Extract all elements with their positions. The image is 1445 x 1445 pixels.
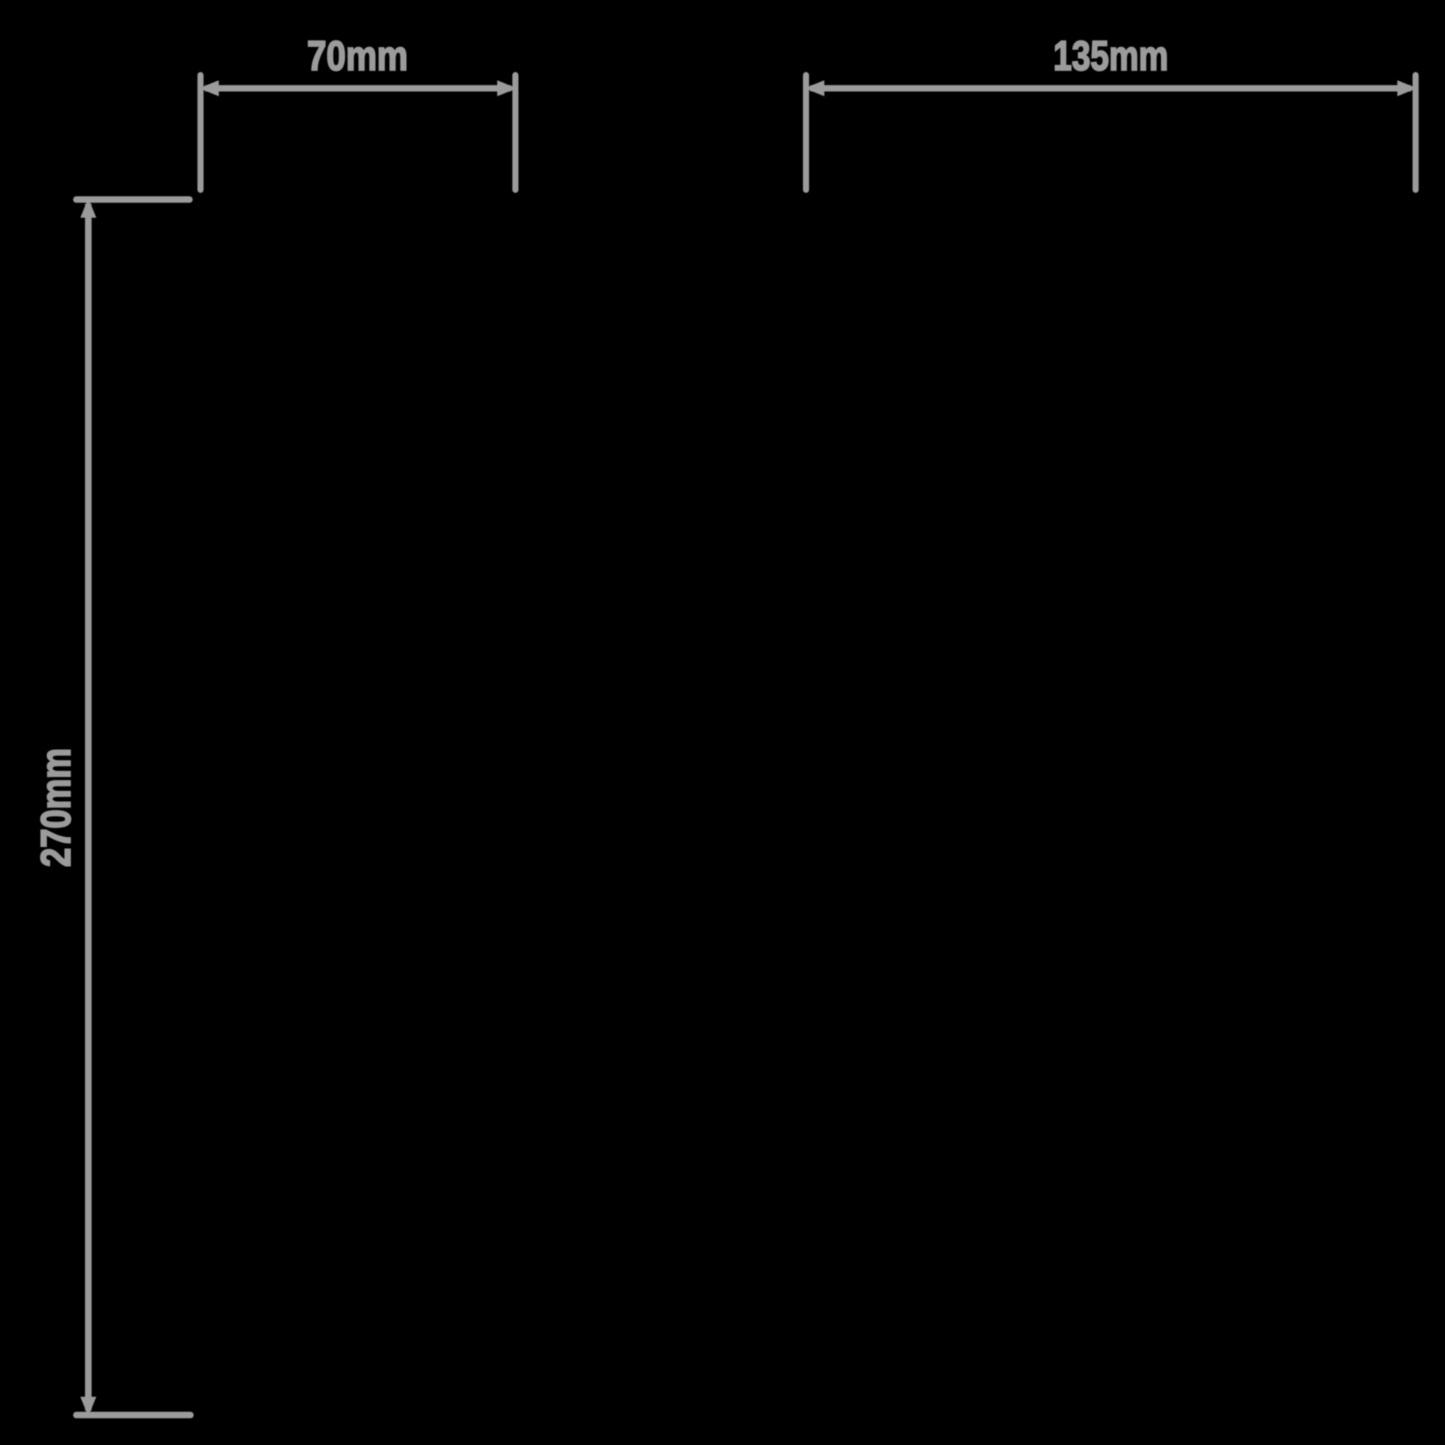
svg-text:270mm: 270mm: [32, 748, 79, 867]
svg-text:135mm: 135mm: [1053, 32, 1168, 79]
svg-text:70mm: 70mm: [307, 32, 408, 79]
